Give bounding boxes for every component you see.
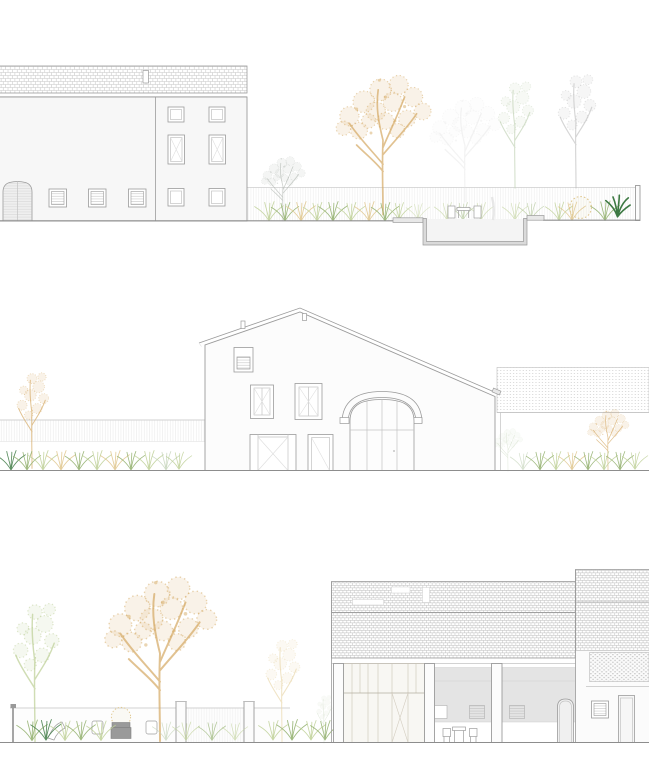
chimney xyxy=(241,321,245,329)
elevation-drawing xyxy=(0,0,649,766)
gable-roof xyxy=(576,570,649,651)
hatched-fence xyxy=(0,420,205,442)
arched-gate xyxy=(3,182,32,222)
wall-post xyxy=(176,702,186,743)
arched-door xyxy=(558,699,574,743)
elevation-middle xyxy=(0,308,649,471)
elevation-bottom xyxy=(0,570,649,744)
side-door xyxy=(308,435,333,471)
louver-vents xyxy=(432,706,525,719)
louver-windows xyxy=(49,189,146,207)
pool-deck-right xyxy=(527,216,544,221)
louver-window xyxy=(592,701,609,718)
tiled-roof xyxy=(0,66,247,93)
armchair xyxy=(146,721,157,734)
patio-table-chairs xyxy=(443,727,477,742)
grass-border-left xyxy=(0,451,192,470)
gray-scribble-tree xyxy=(558,75,595,188)
barn xyxy=(332,582,576,743)
gabled-house xyxy=(199,308,501,471)
wall-end-post xyxy=(636,186,641,221)
window-small xyxy=(209,189,225,207)
faint-background-tree xyxy=(430,97,501,201)
side-door xyxy=(619,696,635,743)
outbuilding-roof xyxy=(497,368,649,413)
brick-lattice xyxy=(590,653,649,682)
tall-window xyxy=(295,384,322,420)
sage-shrub xyxy=(494,428,523,471)
grass-border-right xyxy=(510,452,648,470)
bench-back xyxy=(112,723,130,728)
arch-corbel xyxy=(340,418,349,424)
bench xyxy=(111,728,131,739)
door-handle xyxy=(393,450,395,452)
timber-glazed-bay xyxy=(344,664,425,743)
window-small xyxy=(168,107,184,122)
window-small xyxy=(168,189,184,207)
left-eave-tick xyxy=(199,343,202,347)
pool-basin xyxy=(427,219,524,242)
attic-window xyxy=(234,348,253,373)
louver-window xyxy=(49,189,67,207)
glazed-door xyxy=(250,435,296,471)
window-tall xyxy=(209,135,226,164)
lattice-gable-block xyxy=(576,570,649,743)
sage-tree xyxy=(498,82,533,188)
pool-deck xyxy=(393,218,423,223)
window-tall xyxy=(168,135,185,164)
tall-window xyxy=(251,385,274,419)
elevation-top xyxy=(0,66,640,245)
barn-roof-lower xyxy=(332,613,576,659)
louver-window xyxy=(129,189,147,207)
barn-roof-upper xyxy=(332,582,576,613)
roof-vent xyxy=(143,71,149,84)
louver-window xyxy=(89,189,107,207)
chimney xyxy=(303,314,307,321)
window-small xyxy=(209,107,225,122)
elevation-sheet xyxy=(0,0,649,766)
wall-post xyxy=(244,702,254,743)
gold-shrub xyxy=(570,197,592,219)
building-top xyxy=(0,66,247,221)
golden-tree-right xyxy=(588,409,629,470)
